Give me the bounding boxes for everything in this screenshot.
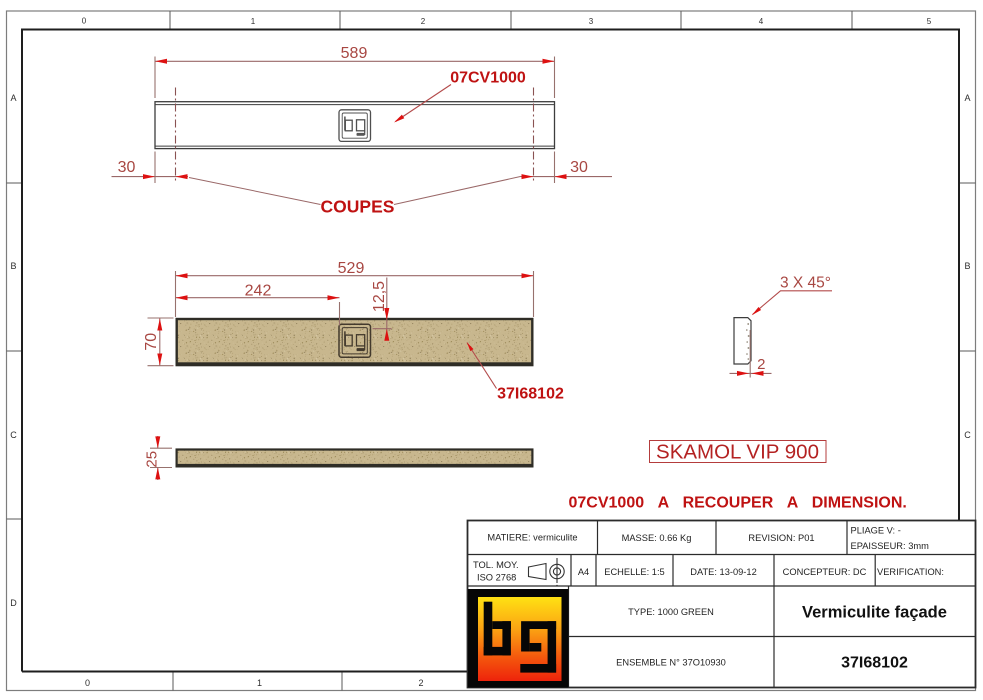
- svg-text:2: 2: [421, 17, 426, 26]
- svg-text:C: C: [964, 430, 971, 440]
- svg-text:MASSE: 0.66 Kg: MASSE: 0.66 Kg: [622, 533, 692, 543]
- svg-text:0: 0: [82, 17, 87, 26]
- svg-text:VERIFICATION:: VERIFICATION:: [877, 567, 944, 577]
- svg-text:12,5: 12,5: [371, 281, 388, 312]
- svg-text:ENSEMBLE N° 37O10930: ENSEMBLE N° 37O10930: [616, 658, 726, 668]
- svg-text:30: 30: [570, 159, 588, 176]
- svg-text:TYPE: 1000 GREEN: TYPE: 1000 GREEN: [628, 607, 714, 617]
- svg-text:A: A: [964, 93, 970, 103]
- svg-text:B: B: [964, 261, 970, 271]
- svg-text:B: B: [10, 261, 16, 271]
- svg-text:3 X 45°: 3 X 45°: [780, 275, 831, 292]
- svg-text:DATE: 13-09-12: DATE: 13-09-12: [690, 567, 757, 577]
- svg-text:CONCEPTEUR: DC: CONCEPTEUR: DC: [783, 567, 867, 577]
- svg-text:PLIAGE V: -: PLIAGE V: -: [851, 526, 901, 536]
- svg-text:589: 589: [341, 45, 368, 62]
- svg-text:Vermiculite façade: Vermiculite façade: [802, 604, 947, 622]
- svg-text:07CV1000 A RECOUPER A DIMENSIO: 07CV1000 A RECOUPER A DIMENSION.: [569, 495, 907, 512]
- svg-text:25: 25: [144, 451, 161, 468]
- svg-text:1: 1: [251, 17, 256, 26]
- svg-text:5: 5: [927, 17, 932, 26]
- svg-text:SKAMOL VIP 900: SKAMOL VIP 900: [656, 441, 819, 464]
- svg-text:37I68102: 37I68102: [841, 655, 908, 672]
- svg-text:37I68102: 37I68102: [497, 386, 564, 403]
- svg-text:3: 3: [589, 17, 594, 26]
- svg-text:D: D: [10, 598, 17, 608]
- svg-text:70: 70: [143, 333, 160, 351]
- svg-text:A: A: [10, 93, 16, 103]
- svg-text:C: C: [10, 430, 17, 440]
- svg-text:30: 30: [118, 159, 136, 176]
- svg-text:4: 4: [759, 17, 764, 26]
- svg-text:EPAISSEUR: 3mm: EPAISSEUR: 3mm: [851, 541, 930, 551]
- svg-text:2: 2: [757, 356, 765, 373]
- svg-text:242: 242: [245, 283, 272, 300]
- svg-text:0: 0: [85, 678, 90, 688]
- svg-text:COUPES: COUPES: [321, 197, 395, 217]
- svg-text:2: 2: [418, 678, 423, 688]
- svg-text:529: 529: [338, 260, 365, 277]
- svg-text:TOL. MOY.: TOL. MOY.: [473, 560, 519, 570]
- svg-text:REVISION: P01: REVISION: P01: [748, 533, 814, 543]
- svg-text:07CV1000: 07CV1000: [450, 70, 526, 87]
- svg-text:A4: A4: [578, 567, 589, 577]
- svg-text:ISO 2768: ISO 2768: [477, 573, 516, 583]
- svg-text:ECHELLE: 1:5: ECHELLE: 1:5: [604, 567, 664, 577]
- svg-text:1: 1: [257, 678, 262, 688]
- svg-text:MATIERE: vermiculite: MATIERE: vermiculite: [487, 533, 577, 543]
